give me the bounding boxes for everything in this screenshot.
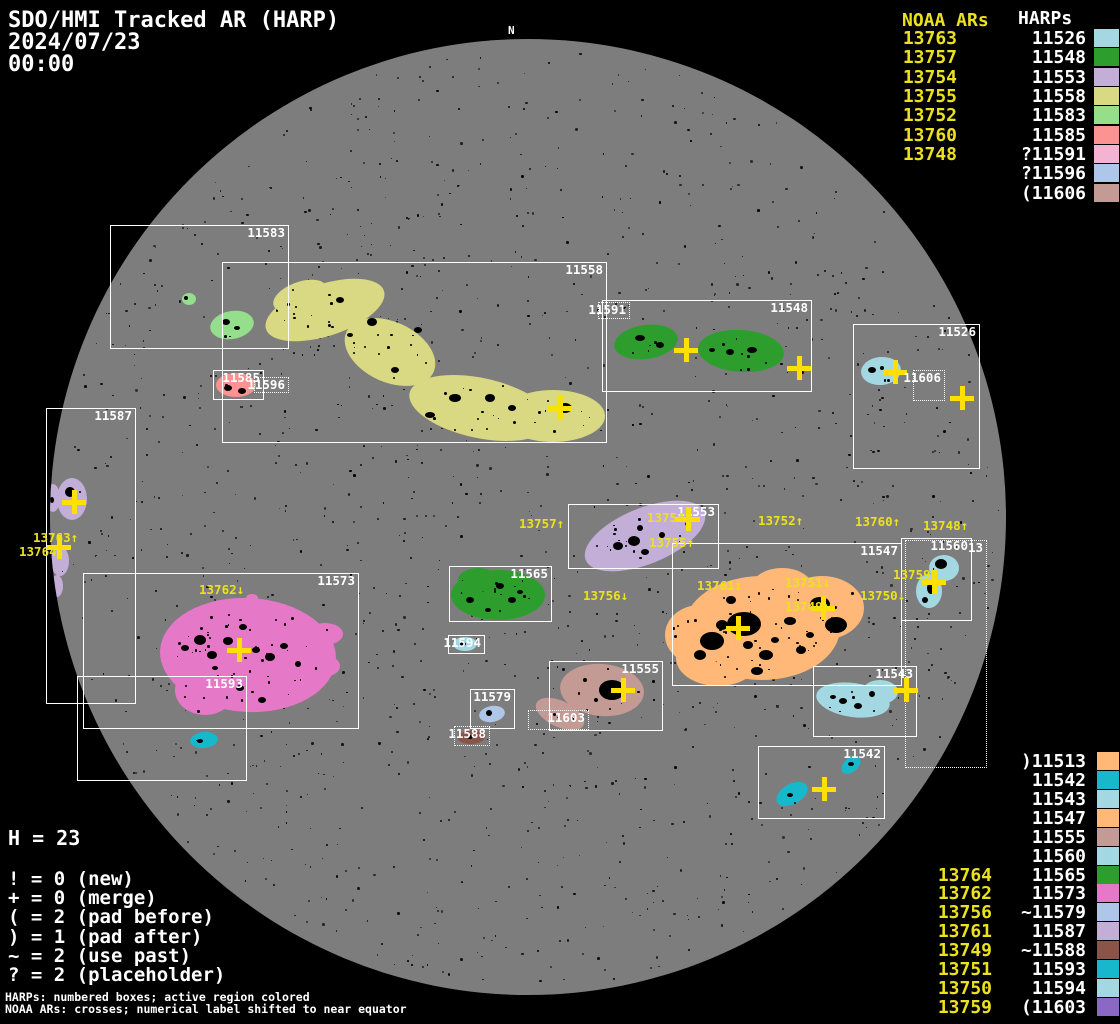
disk-speckle [666,173,668,175]
disk-speckle [526,878,528,880]
disk-speckle [245,880,246,881]
disk-speckle [411,498,412,499]
disk-speckle [423,257,425,259]
legend-bottom-noaa-13749: 13749 [938,942,992,960]
disk-speckle [186,554,188,556]
disk-speckle [646,577,647,578]
disk-speckle [413,703,415,705]
legend-top-noaa-13748: 13748 [903,146,957,164]
disk-speckle [505,447,506,448]
disk-speckle [733,118,735,120]
disk-speckle [721,239,723,241]
disk-speckle [525,102,527,104]
disk-speckle [190,533,192,535]
harp-box-label-11526: 11526 [938,325,976,338]
disk-speckle [521,847,522,848]
disk-speckle [514,675,516,677]
cross-bar [237,638,242,662]
symbol-legend-line-1: + = 0 (merge) [8,889,157,908]
disk-speckle [460,958,463,961]
disk-speckle [397,629,400,632]
disk-speckle [541,907,543,909]
disk-speckle [452,76,454,78]
disk-speckle [481,956,483,958]
disk-speckle [422,537,423,538]
disk-speckle [286,790,288,792]
disk-speckle [726,488,728,490]
disk-speckle [260,735,262,737]
disk-speckle [446,59,447,60]
disk-speckle [718,909,719,910]
disk-speckle [520,154,522,156]
disk-speckle [419,812,421,814]
disk-speckle [392,665,393,666]
disk-speckle [644,778,646,780]
disk-speckle [363,162,365,164]
disk-speckle [516,633,517,634]
disk-speckle [524,73,526,75]
disk-speckle [579,99,581,101]
cross-bar [684,338,689,362]
disk-speckle [812,477,814,479]
disk-speckle [818,427,820,429]
harp-box-label-11547: 11547 [860,544,898,557]
disk-speckle [488,835,489,836]
disk-speckle [566,241,568,243]
disk-speckle [834,293,836,295]
legend-top-harp-11583: 11583 [1032,107,1086,125]
disk-speckle [353,105,355,107]
disk-speckle [688,482,690,484]
north-label: N [508,24,515,37]
disk-speckle [544,807,545,808]
noaa-cross-icon [950,386,974,410]
disk-speckle [486,827,488,829]
legend-bottom-noaa-13761: 13761 [938,923,992,941]
disk-speckle [359,98,360,99]
disk-speckle [527,492,529,494]
disk-speckle [561,886,563,888]
disk-speckle [567,625,569,627]
disk-speckle [231,782,233,784]
disk-speckle [371,244,372,245]
disk-speckle [429,66,431,68]
disk-speckle [752,420,753,421]
disk-speckle [562,217,564,219]
disk-speckle [417,214,419,216]
legend-color-swatch [1094,145,1119,163]
disk-speckle [522,225,524,227]
disk-speckle [720,146,722,148]
disk-speckle [394,141,395,142]
disk-speckle [757,209,760,212]
disk-speckle [227,470,229,472]
disk-speckle [622,835,624,837]
disk-speckle [521,256,522,257]
disk-speckle [163,394,165,396]
disk-speckle [772,395,775,398]
ar-label-13762: 13762↓ [199,583,244,596]
harp-box-label-11583: 11583 [247,226,285,239]
disk-speckle [787,851,789,853]
legend-color-swatch [1097,847,1119,865]
disk-speckle [427,738,429,740]
disk-speckle [414,643,415,644]
disk-speckle [482,139,484,141]
disk-speckle [508,106,510,108]
legend-bottom-harp-11573: 11573 [1032,885,1086,903]
disk-speckle [518,768,521,771]
disk-speckle [295,464,297,466]
disk-speckle [816,212,818,214]
disk-speckle [672,105,674,107]
legend-bottom-noaa-13750: 13750 [938,980,992,998]
disk-speckle [363,697,364,698]
disk-speckle [680,869,682,871]
disk-speckle [270,187,272,189]
disk-speckle [615,780,617,782]
disk-speckle [579,855,581,857]
disk-speckle [460,535,462,537]
disk-speckle [835,423,836,424]
disk-speckle [210,375,212,377]
disk-speckle [635,483,636,484]
disk-speckle [393,650,395,652]
disk-speckle [972,500,974,502]
disk-speckle [712,114,713,115]
disk-speckle [264,760,266,762]
disk-speckle [423,216,425,218]
disk-speckle [669,935,671,937]
disk-speckle [357,129,359,131]
disk-speckle [351,114,352,115]
disk-speckle [546,473,548,475]
disk-speckle [724,512,726,514]
harp-box-label-11593: 11593 [205,677,243,690]
disk-speckle [341,743,344,746]
disk-speckle [748,902,749,903]
disk-speckle [560,189,562,191]
cross-bar [822,777,827,801]
ar-label-13754: 13754↑ [647,511,692,524]
disk-speckle [474,766,475,767]
disk-speckle [436,859,438,861]
ar-label-13757: 13757↑ [519,517,564,530]
disk-speckle [702,184,704,186]
disk-speckle [480,493,482,495]
disk-speckle [557,168,559,170]
ar-label-13755: 13755↑ [649,536,694,549]
disk-speckle [246,811,247,812]
disk-speckle [398,226,400,228]
disk-speckle [722,901,725,904]
disk-speckle [688,949,690,951]
legend-top-harp-11526: 11526 [1032,30,1086,48]
disk-speckle [748,801,750,803]
disk-speckle [420,927,422,929]
disk-speckle [769,881,771,883]
disk-speckle [785,188,787,190]
legend-top-noaa-13752: 13752 [903,107,957,125]
harp-count-label: H = 23 [8,829,80,848]
disk-speckle [604,885,606,887]
disk-speckle [690,140,691,141]
ar-label-13751: 13751↓ [785,576,830,589]
disk-speckle [413,491,415,493]
disk-speckle [803,867,806,870]
disk-speckle [529,168,531,170]
disk-speckle [628,81,629,82]
harp-box-label-11603: 11603 [547,711,585,724]
legend-bottom-harp-11547: 11547 [1032,810,1086,828]
noaa-cross-icon [812,777,836,801]
legend-top-harp-11585: 11585 [1032,127,1086,145]
disk-speckle [332,208,334,210]
disk-speckle [296,539,298,541]
disk-speckle [808,829,809,830]
disk-speckle [416,515,418,517]
disk-speckle [210,808,212,810]
disk-speckle [333,484,334,485]
disk-speckle [714,295,715,296]
noaa-cross-icon [787,356,811,380]
disk-speckle [423,839,425,841]
legend-bottom-harp-11603: (11603 [1021,999,1086,1017]
disk-speckle [468,255,470,257]
disk-speckle [286,130,288,132]
disk-speckle [343,762,344,763]
cross-bar [621,678,626,702]
harp-box-label-11579: 11579 [473,690,511,703]
disk-speckle [886,495,888,497]
legend-bottom-noaa-13759: 13759 [938,999,992,1017]
disk-speckle [720,875,721,876]
disk-speckle [346,549,348,551]
disk-speckle [219,784,220,785]
disk-speckle [607,409,609,411]
legend-bottom-harp-11543: 11543 [1032,791,1086,809]
disk-speckle [620,198,621,199]
disk-speckle [625,165,628,168]
disk-speckle [202,567,204,569]
disk-speckle [141,378,142,379]
disk-speckle [933,305,935,307]
disk-speckle [524,631,526,633]
legend-bottom-noaa-13756: 13756 [938,904,992,922]
disk-speckle [750,160,752,162]
disk-speckle [676,495,678,497]
disk-speckle [782,836,784,838]
disk-speckle [204,221,206,223]
disk-speckle [814,233,815,234]
disk-speckle [263,858,264,859]
disk-speckle [798,220,800,222]
disk-speckle [381,446,383,448]
disk-speckle [471,865,472,866]
disk-speckle [548,62,550,64]
time-label: 00:00 [8,54,74,76]
disk-speckle [715,243,717,245]
disk-speckle [429,136,430,137]
legend-bottom-harp-11594: 11594 [1032,980,1086,998]
disk-speckle [504,664,505,665]
disk-speckle [832,275,834,277]
disk-speckle [429,693,431,695]
disk-speckle [729,162,731,164]
noaa-cross-icon [894,678,918,702]
disk-speckle [692,706,694,708]
disk-speckle [311,742,314,745]
disk-speckle [641,115,642,116]
disk-speckle [615,620,617,622]
disk-speckle [948,317,950,319]
disk-speckle [349,470,351,472]
disk-speckle [300,472,301,473]
disk-speckle [377,667,379,669]
ar-label-13748: 13748↑ [923,519,968,532]
disk-speckle [141,501,143,503]
disk-speckle [524,762,526,764]
disk-speckle [527,766,528,767]
disk-speckle [310,866,312,868]
disk-speckle [883,211,885,213]
disk-speckle [526,188,527,189]
disk-speckle [796,459,799,462]
disk-speckle [416,449,417,450]
disk-speckle [230,211,231,212]
legend-bottom-harp-11579: ~11579 [1021,904,1086,922]
disk-speckle [376,654,378,656]
disk-speckle [363,623,364,624]
disk-speckle [558,147,560,149]
disk-speckle [206,814,209,817]
disk-speckle [782,908,784,910]
disk-speckle [244,568,245,569]
disk-speckle [371,223,372,224]
disk-speckle [490,808,492,810]
disk-speckle [316,219,319,222]
noaa-cross-icon [62,490,86,514]
disk-speckle [304,211,306,213]
disk-speckle [177,813,180,816]
disk-speckle [83,374,85,376]
disk-speckle [228,548,230,550]
legend-color-swatch [1097,828,1119,846]
disk-speckle [618,292,620,294]
disk-speckle [698,916,700,918]
disk-speckle [577,820,578,821]
disk-speckle [650,967,652,969]
disk-speckle [351,103,352,104]
disk-speckle [800,166,803,169]
disk-speckle [713,443,715,445]
disk-speckle [808,728,809,729]
disk-speckle [336,930,337,931]
disk-speckle [300,550,302,552]
disk-speckle [293,539,295,541]
disk-speckle [166,556,168,558]
disk-speckle [738,792,740,794]
disk-speckle [595,785,597,787]
disk-speckle [357,209,359,211]
disk-speckle [401,676,403,678]
disk-speckle [835,191,837,193]
disk-speckle [345,870,347,872]
disk-speckle [793,715,794,716]
disk-speckle [671,823,673,825]
disk-speckle [510,198,511,199]
disk-speckle [640,809,641,810]
disk-speckle [657,886,658,887]
disk-speckle [368,662,370,664]
disk-speckle [433,515,435,517]
ar-label-13756: 13756↓ [583,589,628,602]
disk-speckle [625,898,627,900]
disk-speckle [725,843,727,845]
disk-speckle [142,481,143,482]
disk-speckle [495,901,496,902]
disk-speckle [489,763,491,765]
disk-speckle [423,689,425,691]
disk-speckle [715,711,717,713]
disk-speckle [427,586,428,587]
disk-speckle [830,308,832,310]
disk-speckle [308,209,310,211]
disk-speckle [522,786,523,787]
disk-speckle [112,395,114,397]
disk-speckle [441,203,443,205]
disk-speckle [433,689,435,691]
disk-speckle [776,878,778,880]
disk-speckle [521,175,523,177]
disk-speckle [332,521,334,523]
disk-speckle [579,53,581,55]
disk-speckle [399,595,401,597]
disk-speckle [321,753,322,754]
disk-speckle [468,663,469,664]
disk-speckle [882,271,884,273]
ar-label-13752: 13752↑ [758,514,803,527]
legend-color-swatch [1097,866,1119,884]
disk-speckle [217,846,218,847]
disk-speckle [553,737,555,739]
legend-color-swatch [1094,164,1119,182]
disk-speckle [702,112,704,114]
disk-speckle [440,820,442,822]
disk-speckle [731,843,733,845]
disk-speckle [526,918,527,919]
disk-speckle [679,175,681,177]
disk-speckle [656,956,659,959]
disk-speckle [898,312,899,313]
disk-speckle [573,893,576,896]
disk-speckle [308,900,310,902]
disk-speckle [634,625,635,626]
disk-speckle [385,197,386,198]
disk-speckle [307,794,308,795]
disk-speckle [721,924,724,927]
disk-speckle [275,445,277,447]
disk-speckle [584,781,586,783]
disk-speckle [408,477,409,478]
disk-speckle [856,315,858,317]
disk-speckle [713,707,714,708]
harp-box-label-11542: 11542 [843,747,881,760]
disk-speckle [411,964,413,966]
disk-speckle [970,472,971,473]
disk-speckle [404,532,406,534]
disk-speckle [407,761,409,763]
